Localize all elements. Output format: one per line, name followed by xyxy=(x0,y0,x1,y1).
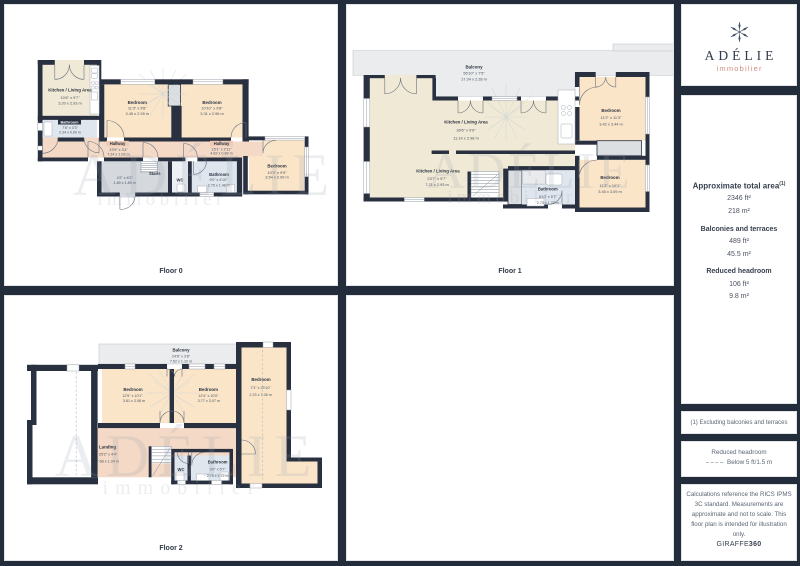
svg-text:Kitchen / Living Area: Kitchen / Living Area xyxy=(48,88,92,93)
svg-text:11'2" x 11'3": 11'2" x 11'3" xyxy=(601,115,622,120)
svg-text:12'4" x 10'0": 12'4" x 10'0" xyxy=(198,394,219,398)
svg-text:immobilier: immobilier xyxy=(447,187,576,208)
svg-text:11.14 x 2.98 m: 11.14 x 2.98 m xyxy=(453,136,478,141)
svg-text:Bedroom: Bedroom xyxy=(128,100,147,105)
svg-text:36'6" x 9'9": 36'6" x 9'9" xyxy=(456,128,476,133)
svg-text:56'10" x 7'5": 56'10" x 7'5" xyxy=(463,71,485,76)
svg-text:Bedroom: Bedroom xyxy=(202,100,221,105)
svg-text:2.34 x 0.99 m: 2.34 x 0.99 m xyxy=(59,131,81,135)
svg-text:Kitchen / Living Area: Kitchen / Living Area xyxy=(444,120,488,125)
svg-text:immobilier: immobilier xyxy=(97,189,226,210)
svg-text:17.34 x 2.28 m: 17.34 x 2.28 m xyxy=(461,76,487,81)
svg-text:3.77 x 3.07 m: 3.77 x 3.07 m xyxy=(198,399,220,403)
svg-text:7.52 x 1.12 m: 7.52 x 1.12 m xyxy=(170,360,192,364)
svg-text:Bathroom: Bathroom xyxy=(61,120,80,124)
svg-text:Balcony: Balcony xyxy=(172,348,190,353)
svg-text:24'8" x 3'8": 24'8" x 3'8" xyxy=(172,355,191,359)
svg-text:Bedroom: Bedroom xyxy=(199,387,218,392)
svg-text:Balcony: Balcony xyxy=(465,65,483,70)
svg-text:2.23 x 7.28 m: 2.23 x 7.28 m xyxy=(249,393,271,397)
svg-text:3.42 x 3.44 m: 3.42 x 3.44 m xyxy=(599,122,623,127)
svg-text:Bedroom: Bedroom xyxy=(123,387,142,392)
svg-text:Bedroom: Bedroom xyxy=(251,377,270,382)
svg-text:3.31 x 2.96 m: 3.31 x 2.96 m xyxy=(200,111,224,116)
svg-text:10'6" x 9'7": 10'6" x 9'7" xyxy=(60,95,80,100)
svg-text:10'10" x 9'8": 10'10" x 9'8" xyxy=(201,106,223,111)
svg-text:Bedroom: Bedroom xyxy=(601,108,620,113)
svg-text:3.20 x 2.93 m: 3.20 x 2.93 m xyxy=(58,101,82,106)
svg-text:11'3" x 9'8": 11'3" x 9'8" xyxy=(128,106,148,111)
svg-text:12'5" x 10'1": 12'5" x 10'1" xyxy=(122,394,143,398)
svg-text:7'3" x 23'10": 7'3" x 23'10" xyxy=(250,386,271,390)
svg-text:immobilier: immobilier xyxy=(103,477,262,499)
svg-text:3.81 x 3.08 m: 3.81 x 3.08 m xyxy=(123,399,145,403)
svg-text:3.45 x 2.95 m: 3.45 x 2.95 m xyxy=(126,111,150,116)
svg-text:7'8" x 3'3": 7'8" x 3'3" xyxy=(62,126,78,130)
